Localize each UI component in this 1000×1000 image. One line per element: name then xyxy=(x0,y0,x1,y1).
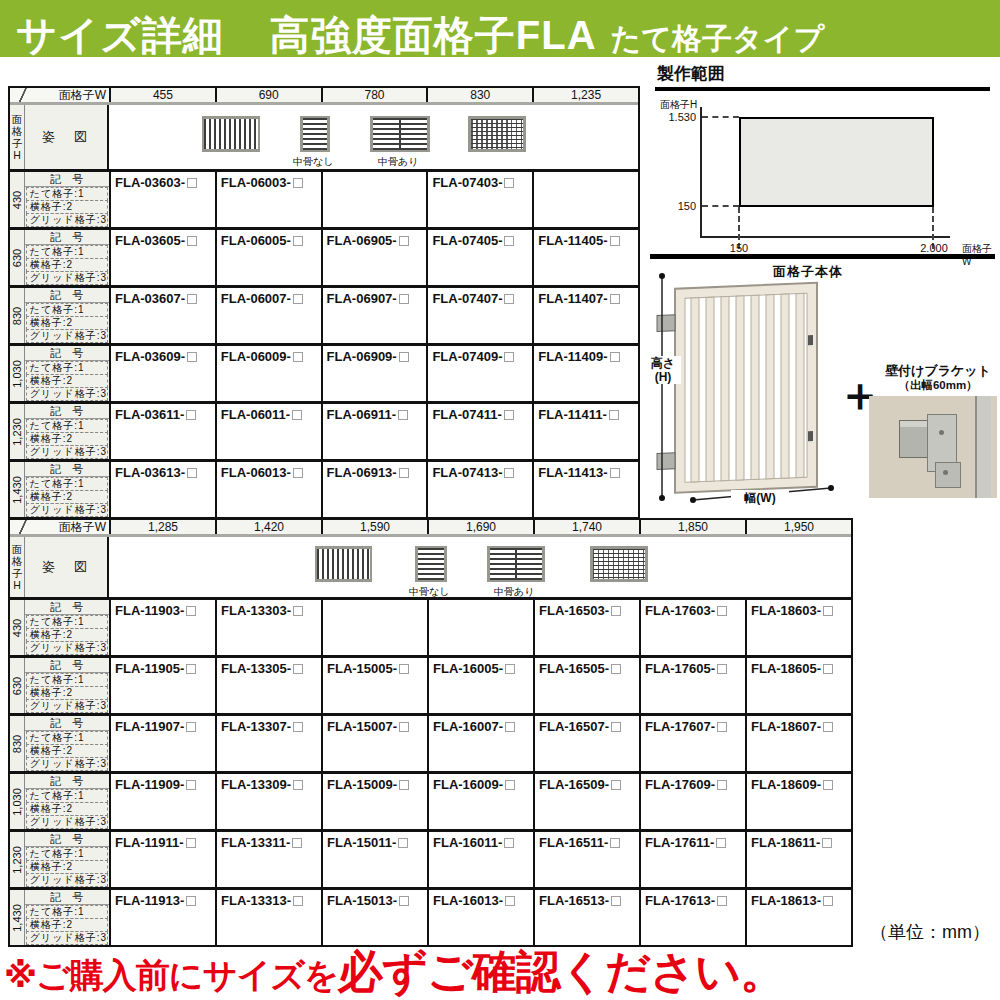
width-col-header: 1,740 xyxy=(533,520,639,534)
code-suffix-checkbox xyxy=(822,838,832,848)
code-suffix-checkbox xyxy=(504,178,514,188)
code-suffix-checkbox xyxy=(609,410,619,420)
range-area-rect xyxy=(739,117,934,207)
code-suffix-checkbox xyxy=(504,468,514,478)
pose-label-block: 面格子H姿 図 xyxy=(10,105,109,169)
lattice-type-label: 横格子:2 xyxy=(26,316,108,330)
product-code: FLA-16513- xyxy=(539,893,609,908)
code-suffix-checkbox xyxy=(823,606,833,616)
product-code: FLA-13311- xyxy=(221,835,290,850)
wall-bracket-photo xyxy=(869,396,997,498)
product-code: FLA-06907- xyxy=(327,291,397,306)
code-suffix-checkbox xyxy=(399,236,409,246)
product-code: FLA-06009- xyxy=(221,349,291,364)
row-label-block: 430記 号たて格子:1横格子:2グリッド格子:3 xyxy=(10,172,109,227)
code-row-header: 記 号 xyxy=(25,288,109,303)
code-suffix-checkbox xyxy=(398,838,408,848)
row-label-right: 記 号たて格子:1横格子:2グリッド格子:3 xyxy=(25,658,109,713)
product-code: FLA-03609- xyxy=(115,349,185,364)
pose-row: 面格子H姿 図中骨なし中骨あり xyxy=(10,537,851,597)
code-suffix-checkbox xyxy=(293,606,303,616)
h-axis-header-char: 面 xyxy=(12,543,23,555)
code-suffix-checkbox xyxy=(823,722,833,732)
code-suffix-checkbox xyxy=(399,780,409,790)
size-table-lower: 面格子W1,2851,4201,5901,6901,7401,8501,950面… xyxy=(8,518,853,947)
lattice-type-label: 横格子:2 xyxy=(26,802,108,816)
code-suffix-checkbox xyxy=(610,838,620,848)
code-suffix-checkbox xyxy=(186,896,196,906)
range-x-min-tick: 150 xyxy=(719,242,759,254)
product-code-cell: FLA-13309- xyxy=(215,774,321,829)
lattice-type-label: グリッド格子:3 xyxy=(26,757,108,771)
lattice-type-label: 横格子:2 xyxy=(26,374,108,388)
code-suffix-checkbox xyxy=(292,838,302,848)
h-axis-header-char: 格 xyxy=(12,125,23,137)
product-code-cell: FLA-17613- xyxy=(639,890,745,945)
product-code: FLA-17613- xyxy=(645,893,715,908)
horizontal-lattice-icon xyxy=(300,116,330,152)
product-code: FLA-15013- xyxy=(327,893,397,908)
product-code-cell: FLA-11903- xyxy=(109,600,215,655)
vertical-lattice-icon xyxy=(202,116,260,152)
table-row: 1,230記 号たて格子:1横格子:2グリッド格子:3FLA-03611-FLA… xyxy=(10,401,638,459)
lattice-type-label: たて格子:1 xyxy=(26,847,108,861)
product-code-cell xyxy=(427,600,533,655)
code-suffix-checkbox xyxy=(187,178,197,188)
lattice-type-label: たて格子:1 xyxy=(26,615,108,629)
product-code-cell: FLA-06007- xyxy=(215,288,321,343)
product-code-cell: FLA-11405- xyxy=(532,230,638,285)
range-y-min-tick: 150 xyxy=(654,200,696,212)
product-code-cell: FLA-06013- xyxy=(215,462,321,517)
product-code-cell: FLA-17605- xyxy=(639,658,745,713)
code-suffix-checkbox xyxy=(186,722,196,732)
product-code: FLA-06905- xyxy=(327,233,397,248)
code-suffix-checkbox xyxy=(399,468,409,478)
product-code: FLA-06003- xyxy=(221,175,291,190)
product-code: FLA-16005- xyxy=(433,661,503,676)
table-header-row: 面格子W4556907808301,235 xyxy=(10,88,638,105)
pose-row: 面格子H姿 図中骨なし中骨あり xyxy=(10,105,638,169)
code-suffix-checkbox xyxy=(293,236,303,246)
bracket-foot xyxy=(935,462,961,488)
product-code-cell: FLA-07405- xyxy=(426,230,532,285)
product-code-cell: FLA-03609- xyxy=(109,346,215,401)
row-label-right: 記 号たて格子:1横格子:2グリッド格子:3 xyxy=(25,404,109,459)
code-suffix-checkbox xyxy=(823,780,833,790)
row-height-strip: 430 xyxy=(10,172,25,227)
code-suffix-checkbox xyxy=(610,468,620,478)
code-suffix-checkbox xyxy=(610,352,620,362)
width-col-header: 830 xyxy=(426,88,532,102)
bracket-frame-bar xyxy=(975,396,991,498)
bracket-screw xyxy=(943,470,948,475)
row-height-label: 1,230 xyxy=(11,846,23,874)
product-code-cell: FLA-16507- xyxy=(533,716,639,771)
code-suffix-checkbox xyxy=(187,294,197,304)
code-row-header: 記 号 xyxy=(25,658,109,673)
lattice-type-label: グリッド格子:3 xyxy=(26,445,108,459)
production-range-chart: 製作範囲 面格子H 1.530 150 150 2.000 面格子W xyxy=(650,60,995,256)
table-row: 1,430記 号たて格子:1横格子:2グリッド格子:3FLA-11913-FLA… xyxy=(10,887,851,945)
product-code: FLA-15009- xyxy=(327,777,397,792)
product-code-cell: FLA-11413- xyxy=(532,462,638,517)
product-code-cell: FLA-07409- xyxy=(426,346,532,401)
product-code-cell: FLA-11911- xyxy=(109,832,215,887)
product-code: FLA-11413- xyxy=(538,465,607,480)
lattice-type-label: グリッド格子:3 xyxy=(26,503,108,517)
product-code-cell: FLA-07407- xyxy=(426,288,532,343)
product-code-cell: FLA-15009- xyxy=(321,774,427,829)
code-suffix-checkbox xyxy=(611,664,621,674)
product-code-cell: FLA-06003- xyxy=(215,172,321,227)
product-code: FLA-17611- xyxy=(645,835,714,850)
lattice-type-label: たて格子:1 xyxy=(26,789,108,803)
product-code: FLA-16009- xyxy=(433,777,503,792)
pose-figure-cell: 中骨なし中骨あり xyxy=(109,105,638,169)
product-code-cell: FLA-16511- xyxy=(533,832,639,887)
code-suffix-checkbox xyxy=(717,780,727,790)
table-row: 1,030記 号たて格子:1横格子:2グリッド格子:3FLA-11909-FLA… xyxy=(10,771,851,829)
product-code-cell: FLA-18603- xyxy=(745,600,851,655)
lattice-type-label: 横格子:2 xyxy=(26,490,108,504)
code-row-header: 記 号 xyxy=(25,774,109,789)
code-suffix-checkbox xyxy=(399,896,409,906)
product-code: FLA-11913- xyxy=(115,893,184,908)
product-code-cell: FLA-16005- xyxy=(427,658,533,713)
lattice-type-label: たて格子:1 xyxy=(26,905,108,919)
row-height-label: 430 xyxy=(11,618,23,636)
unit-note: （単位：mm） xyxy=(870,920,990,944)
product-code: FLA-11911- xyxy=(115,835,184,850)
row-height-strip: 630 xyxy=(10,230,25,285)
code-suffix-checkbox xyxy=(187,236,197,246)
range-x-max-tick: 2.000 xyxy=(908,242,960,254)
table-row: 630記 号たて格子:1横格子:2グリッド格子:3FLA-03605-FLA-0… xyxy=(10,227,638,285)
h-axis-header-char: 格 xyxy=(12,555,23,567)
lattice-type-label: 横格子:2 xyxy=(26,860,108,874)
row-label-right: 記 号たて格子:1横格子:2グリッド格子:3 xyxy=(25,774,109,829)
product-code: FLA-06011- xyxy=(221,407,290,422)
code-suffix-checkbox xyxy=(504,838,514,848)
code-suffix-checkbox xyxy=(293,294,303,304)
row-label-block: 1,230記 号たて格子:1横格子:2グリッド格子:3 xyxy=(10,832,109,887)
product-code-cell: FLA-17611- xyxy=(639,832,745,887)
product-code: FLA-17607- xyxy=(645,719,715,734)
code-suffix-checkbox xyxy=(504,236,514,246)
row-height-strip: 1,030 xyxy=(10,774,25,829)
row-label-block: 630記 号たて格子:1横格子:2グリッド格子:3 xyxy=(10,230,109,285)
purchase-warning: ※ご購入前にサイズを必ずご確認ください。 xyxy=(4,942,784,1000)
lattice-type-label: たて格子:1 xyxy=(26,245,108,259)
width-col-header: 1,420 xyxy=(215,520,321,534)
code-row-header: 記 号 xyxy=(25,230,109,245)
product-code-cell xyxy=(321,600,427,655)
height-dimension-label: 高さ (H) xyxy=(645,356,681,384)
code-suffix-checkbox xyxy=(717,664,727,674)
product-code-cell: FLA-17603- xyxy=(639,600,745,655)
pose-figure-label: 姿 図 xyxy=(25,105,107,169)
product-code: FLA-17605- xyxy=(645,661,715,676)
product-code-cell: FLA-06909- xyxy=(321,346,427,401)
table-header-row: 面格子W1,2851,4201,5901,6901,7401,8501,950 xyxy=(10,520,851,537)
table-row: 1,230記 号たて格子:1横格子:2グリッド格子:3FLA-11911-FLA… xyxy=(10,829,851,887)
product-code: FLA-16505- xyxy=(539,661,609,676)
code-row-header: 記 号 xyxy=(25,462,109,477)
row-label-block: 430記 号たて格子:1横格子:2グリッド格子:3 xyxy=(10,600,109,655)
product-code: FLA-06911- xyxy=(327,407,396,422)
product-code-cell: FLA-17607- xyxy=(639,716,745,771)
code-suffix-checkbox xyxy=(611,896,621,906)
product-code: FLA-16007- xyxy=(433,719,503,734)
code-suffix-checkbox xyxy=(611,780,621,790)
h-axis-header-char: 子 xyxy=(12,567,23,579)
width-col-header: 780 xyxy=(321,88,427,102)
lattice-type-label: たて格子:1 xyxy=(26,477,108,491)
vertical-lattice-icon xyxy=(315,546,372,582)
row-label-block: 1,430記 号たて格子:1横格子:2グリッド格子:3 xyxy=(10,462,109,517)
lattice-type-label: 横格子:2 xyxy=(26,744,108,758)
width-col-header: 455 xyxy=(109,88,215,102)
product-code: FLA-11411- xyxy=(538,407,607,422)
code-suffix-checkbox xyxy=(186,606,196,616)
row-label-block: 1,430記 号たて格子:1横格子:2グリッド格子:3 xyxy=(10,890,109,945)
h-axis-header-strip: 面格子H xyxy=(10,537,25,597)
row-label-block: 630記 号たて格子:1横格子:2グリッド格子:3 xyxy=(10,658,109,713)
code-row-header: 記 号 xyxy=(25,890,109,905)
bracket-screw xyxy=(939,430,944,435)
size-table-upper: 面格子W4556907808301,235面格子H姿 図中骨なし中骨あり430記… xyxy=(8,86,640,519)
product-code: FLA-11905- xyxy=(115,661,184,676)
lattice-type-label: 横格子:2 xyxy=(26,432,108,446)
pose-figure-label: 姿 図 xyxy=(25,537,107,597)
product-code-cell: FLA-16513- xyxy=(533,890,639,945)
row-label-right: 記 号たて格子:1横格子:2グリッド格子:3 xyxy=(25,288,109,343)
product-code: FLA-18603- xyxy=(751,603,821,618)
product-code: FLA-18613- xyxy=(751,893,821,908)
product-code-cell xyxy=(321,172,427,227)
corner-cell: 面格子W xyxy=(10,88,109,102)
product-code: FLA-07411- xyxy=(432,407,501,422)
product-code-cell: FLA-16009- xyxy=(427,774,533,829)
code-suffix-checkbox xyxy=(505,722,515,732)
product-code-cell: FLA-07413- xyxy=(426,462,532,517)
product-code: FLA-11909- xyxy=(115,777,184,792)
product-code: FLA-06913- xyxy=(327,465,397,480)
width-col-header: 1,850 xyxy=(639,520,745,534)
product-code: FLA-11405- xyxy=(538,233,607,248)
row-label-right: 記 号たて格子:1横格子:2グリッド格子:3 xyxy=(25,716,109,771)
range-chart-title: 製作範囲 xyxy=(657,62,725,85)
product-code: FLA-15005- xyxy=(327,661,397,676)
product-code: FLA-11903- xyxy=(115,603,184,618)
product-code-cell: FLA-03607- xyxy=(109,288,215,343)
product-code-cell: FLA-06907- xyxy=(321,288,427,343)
product-code-cell: FLA-16503- xyxy=(533,600,639,655)
row-label-right: 記 号たて格子:1横格子:2グリッド格子:3 xyxy=(25,462,109,517)
product-code-cell: FLA-16013- xyxy=(427,890,533,945)
row-height-label: 630 xyxy=(11,248,23,266)
code-suffix-checkbox xyxy=(504,410,514,420)
width-col-header: 1,235 xyxy=(532,88,638,102)
lattice-type-label: 横格子:2 xyxy=(26,258,108,272)
width-col-header: 1,285 xyxy=(109,520,215,534)
range-y-axis-label: 面格子H xyxy=(660,98,697,112)
body-label: 面格子本体 xyxy=(773,263,843,281)
pose-figure-cell: 中骨なし中骨あり xyxy=(109,537,851,597)
w-axis-header: 面格子W xyxy=(59,87,106,104)
product-code: FLA-06005- xyxy=(221,233,291,248)
row-height-strip: 830 xyxy=(10,716,25,771)
bracket-block xyxy=(899,420,929,458)
lattice-type-label: グリッド格子:3 xyxy=(26,271,108,285)
lattice-type-label: グリッド格子:3 xyxy=(26,329,108,343)
product-code-cell: FLA-18611- xyxy=(745,832,851,887)
code-suffix-checkbox xyxy=(186,410,196,420)
product-code: FLA-07407- xyxy=(432,291,502,306)
product-code-cell: FLA-03603- xyxy=(109,172,215,227)
product-code-cell: FLA-13311- xyxy=(215,832,321,887)
row-height-strip: 1,030 xyxy=(10,346,25,401)
product-code: FLA-11409- xyxy=(538,349,607,364)
lattice-variant-label: 中骨あり xyxy=(378,155,418,169)
product-code: FLA-13307- xyxy=(221,719,291,734)
product-code-cell: FLA-18605- xyxy=(745,658,851,713)
width-col-header: 1,590 xyxy=(321,520,427,534)
row-height-label: 1,030 xyxy=(11,360,23,388)
product-code-cell: FLA-11913- xyxy=(109,890,215,945)
row-height-label: 1,430 xyxy=(11,904,23,932)
product-code: FLA-17603- xyxy=(645,603,715,618)
product-code: FLA-16507- xyxy=(539,719,609,734)
code-suffix-checkbox xyxy=(293,352,303,362)
product-code-cell: FLA-16505- xyxy=(533,658,639,713)
table-row: 430記 号たて格子:1横格子:2グリッド格子:3FLA-03603-FLA-0… xyxy=(10,169,638,227)
product-code: FLA-07409- xyxy=(432,349,502,364)
lattice-type-label: グリッド格子:3 xyxy=(26,873,108,887)
product-illustration: 面格子本体 高さ (H) 幅(W) ＋ 壁付けブラケット （出幅60mm） xyxy=(645,260,1000,514)
product-code: FLA-11407- xyxy=(538,291,607,306)
product-code-cell: FLA-06011- xyxy=(215,404,321,459)
lattice-variant-label: 中骨なし xyxy=(409,585,449,599)
product-code-cell: FLA-13307- xyxy=(215,716,321,771)
product-code: FLA-07413- xyxy=(432,465,502,480)
code-suffix-checkbox xyxy=(611,722,621,732)
product-code: FLA-15007- xyxy=(327,719,397,734)
product-code-cell: FLA-03605- xyxy=(109,230,215,285)
code-suffix-checkbox xyxy=(293,468,303,478)
code-suffix-checkbox xyxy=(505,780,515,790)
product-code-cell: FLA-15005- xyxy=(321,658,427,713)
code-suffix-checkbox xyxy=(504,294,514,304)
product-code: FLA-16013- xyxy=(433,893,503,908)
product-code-cell: FLA-11907- xyxy=(109,716,215,771)
product-code: FLA-18609- xyxy=(751,777,821,792)
table-row: 1,430記 号たて格子:1横格子:2グリッド格子:3FLA-03613-FLA… xyxy=(10,459,638,517)
catalog-page: サイズ詳細 高強度面格子FLA たて格子タイプ 面格子W455690780830… xyxy=(0,0,1000,1000)
product-code: FLA-03605- xyxy=(115,233,185,248)
row-height-strip: 630 xyxy=(10,658,25,713)
lattice-type-label: グリッド格子:3 xyxy=(26,387,108,401)
product-code-cell: FLA-06009- xyxy=(215,346,321,401)
code-suffix-checkbox xyxy=(399,722,409,732)
h-axis-header-strip: 面格子H xyxy=(10,105,25,169)
row-height-strip: 1,230 xyxy=(10,832,25,887)
lattice-type-label: グリッド格子:3 xyxy=(26,815,108,829)
code-suffix-checkbox xyxy=(186,664,196,674)
lattice-type-label: たて格子:1 xyxy=(26,419,108,433)
product-code: FLA-07405- xyxy=(432,233,502,248)
product-code-cell: FLA-16011- xyxy=(427,832,533,887)
product-code: FLA-13305- xyxy=(221,661,291,676)
table-row: 430記 号たて格子:1横格子:2グリッド格子:3FLA-11903-FLA-1… xyxy=(10,597,851,655)
lattice-type-label: 横格子:2 xyxy=(26,628,108,642)
product-code: FLA-16011- xyxy=(433,835,502,850)
width-col-header: 690 xyxy=(215,88,321,102)
table-row: 830記 号たて格子:1横格子:2グリッド格子:3FLA-11907-FLA-1… xyxy=(10,713,851,771)
row-height-label: 1,430 xyxy=(11,476,23,504)
product-code-cell: FLA-07403- xyxy=(426,172,532,227)
row-label-block: 830記 号たて格子:1横格子:2グリッド格子:3 xyxy=(10,288,109,343)
page-title-bar: サイズ詳細 高強度面格子FLA たて格子タイプ xyxy=(0,0,1000,57)
product-code-cell: FLA-06005- xyxy=(215,230,321,285)
product-code-cell: FLA-18613- xyxy=(745,890,851,945)
width-col-header: 1,690 xyxy=(427,520,533,534)
code-suffix-checkbox xyxy=(293,664,303,674)
product-code-cell: FLA-18607- xyxy=(745,716,851,771)
product-code-cell: FLA-16007- xyxy=(427,716,533,771)
product-code-cell: FLA-15011- xyxy=(321,832,427,887)
product-code: FLA-03607- xyxy=(115,291,185,306)
code-suffix-checkbox xyxy=(293,722,303,732)
code-suffix-checkbox xyxy=(293,896,303,906)
code-row-header: 記 号 xyxy=(25,346,109,361)
row-height-strip: 1,430 xyxy=(10,890,25,945)
code-suffix-checkbox xyxy=(187,352,197,362)
row-label-right: 記 号たて格子:1横格子:2グリッド格子:3 xyxy=(25,890,109,945)
width-dimension-label: 幅(W) xyxy=(731,490,789,507)
product-type-title: たて格子タイプ xyxy=(611,19,825,60)
product-code: FLA-15011- xyxy=(327,835,396,850)
product-code: FLA-17609- xyxy=(645,777,715,792)
row-height-label: 430 xyxy=(11,190,23,208)
product-code: FLA-13303- xyxy=(221,603,291,618)
range-dash-line xyxy=(702,116,739,118)
row-label-block: 1,230記 号たて格子:1横格子:2グリッド格子:3 xyxy=(10,404,109,459)
row-label-block: 830記 号たて格子:1横格子:2グリッド格子:3 xyxy=(10,716,109,771)
code-suffix-checkbox xyxy=(398,410,408,420)
code-suffix-checkbox xyxy=(399,352,409,362)
horizontal-lattice-icon xyxy=(415,546,447,582)
range-y-axis-line xyxy=(700,107,702,238)
table-row: 830記 号たて格子:1横格子:2グリッド格子:3FLA-03607-FLA-0… xyxy=(10,285,638,343)
code-suffix-checkbox xyxy=(823,896,833,906)
pose-label-block: 面格子H姿 図 xyxy=(10,537,109,597)
row-height-label: 1,230 xyxy=(11,418,23,446)
product-code: FLA-06909- xyxy=(327,349,397,364)
title-underline xyxy=(655,87,990,91)
lattice-type-label: グリッド格子:3 xyxy=(26,699,108,713)
lattice-type-label: 横格子:2 xyxy=(26,200,108,214)
corner-cell: 面格子W xyxy=(10,520,109,534)
product-code: FLA-16509- xyxy=(539,777,609,792)
product-code-cell: FLA-11905- xyxy=(109,658,215,713)
lattice-type-label: グリッド格子:3 xyxy=(26,213,108,227)
product-code: FLA-16511- xyxy=(539,835,608,850)
h-axis-header-char: H xyxy=(13,579,21,591)
product-code: FLA-18607- xyxy=(751,719,821,734)
product-code-cell: FLA-11411- xyxy=(532,404,638,459)
